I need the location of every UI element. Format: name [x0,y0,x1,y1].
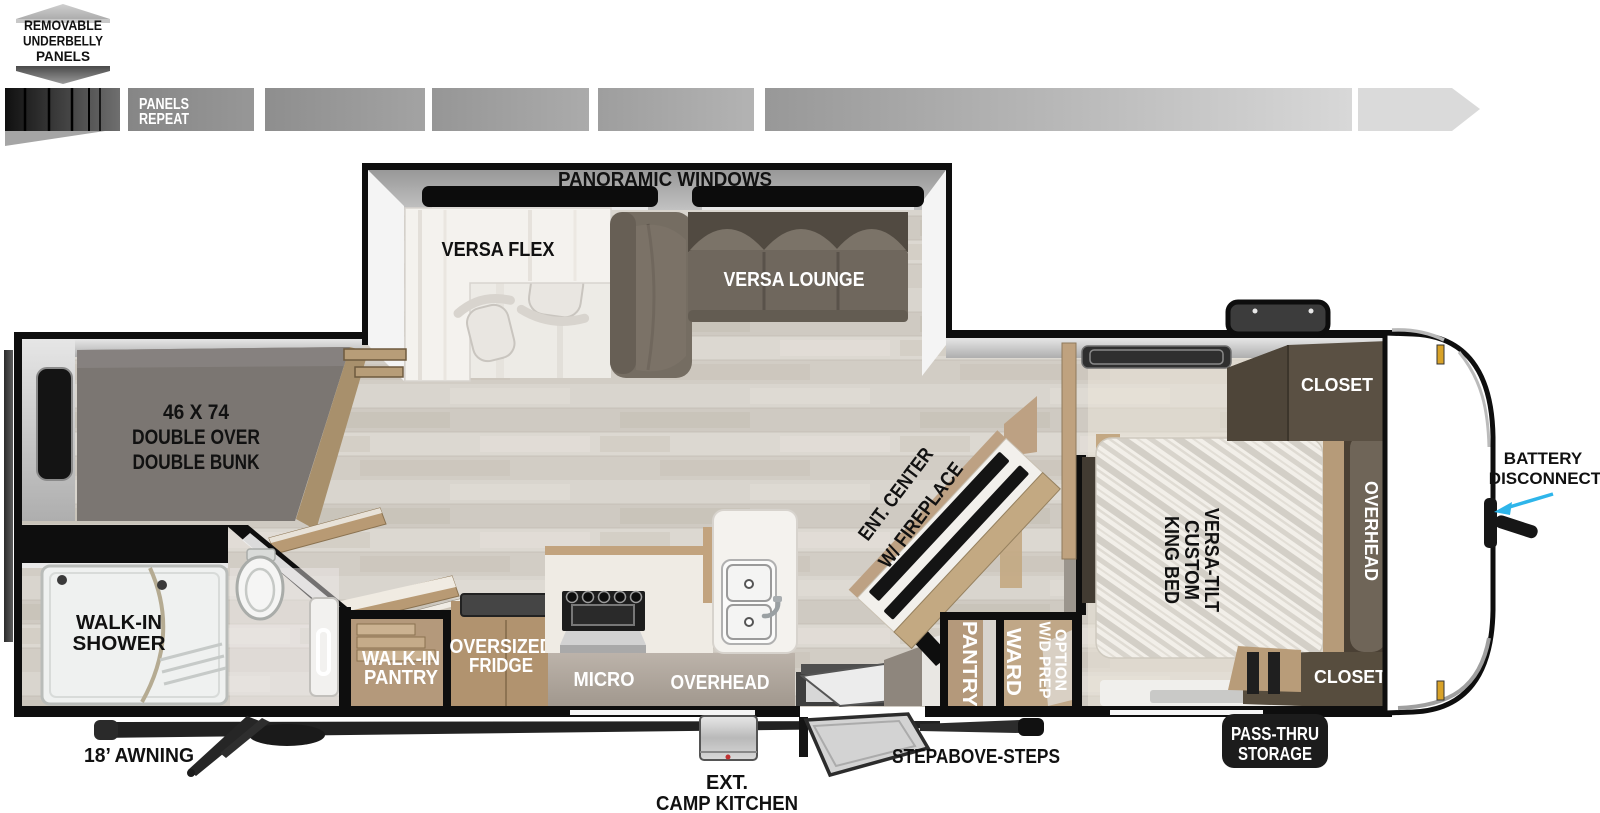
svg-text:REPEAT: REPEAT [139,111,189,128]
svg-text:STEPABOVE-STEPS: STEPABOVE-STEPS [892,746,1060,768]
svg-text:W/D PREP: W/D PREP [1036,622,1053,699]
svg-text:WALK-IN: WALK-IN [76,612,162,634]
svg-text:STORAGE: STORAGE [1238,744,1312,764]
svg-text:46 X 74: 46 X 74 [163,401,229,424]
svg-text:UNDERBELLY: UNDERBELLY [23,33,104,49]
svg-text:OPTION: OPTION [1052,629,1069,691]
svg-text:PANORAMIC WINDOWS: PANORAMIC WINDOWS [558,169,772,191]
svg-text:BATTERY: BATTERY [1504,449,1583,468]
svg-text:DOUBLE BUNK: DOUBLE BUNK [133,451,260,474]
svg-text:VERSA LOUNGE: VERSA LOUNGE [724,269,865,291]
svg-text:CLOSET: CLOSET [1301,375,1373,395]
svg-text:PANTRY: PANTRY [364,667,439,689]
svg-text:OVERHEAD: OVERHEAD [671,672,770,694]
svg-text:CLOSET: CLOSET [1314,667,1386,687]
svg-text:CAMP KITCHEN: CAMP KITCHEN [656,793,798,813]
svg-text:PASS-THRU: PASS-THRU [1231,724,1319,744]
svg-text:SHOWER: SHOWER [73,633,167,655]
svg-text:REMOVABLE: REMOVABLE [24,17,102,33]
svg-text:MICRO: MICRO [574,669,635,691]
svg-text:VERSA-TILT: VERSA-TILT [1200,508,1222,612]
svg-text:WARD: WARD [1002,628,1024,696]
svg-text:VERSA FLEX: VERSA FLEX [442,239,556,261]
svg-text:KING BED: KING BED [1160,516,1182,604]
svg-text:EXT.: EXT. [706,772,748,794]
svg-text:DOUBLE OVER: DOUBLE OVER [132,426,260,449]
svg-text:CUSTOM: CUSTOM [1180,520,1202,600]
svg-text:18’ AWNING: 18’ AWNING [84,745,194,767]
svg-text:PANELS: PANELS [36,48,90,64]
svg-text:PANTRY: PANTRY [958,621,980,708]
svg-text:DISCONNECT: DISCONNECT [1489,469,1600,488]
svg-text:OVERHEAD: OVERHEAD [1361,481,1381,581]
svg-text:FRIDGE: FRIDGE [469,655,533,677]
